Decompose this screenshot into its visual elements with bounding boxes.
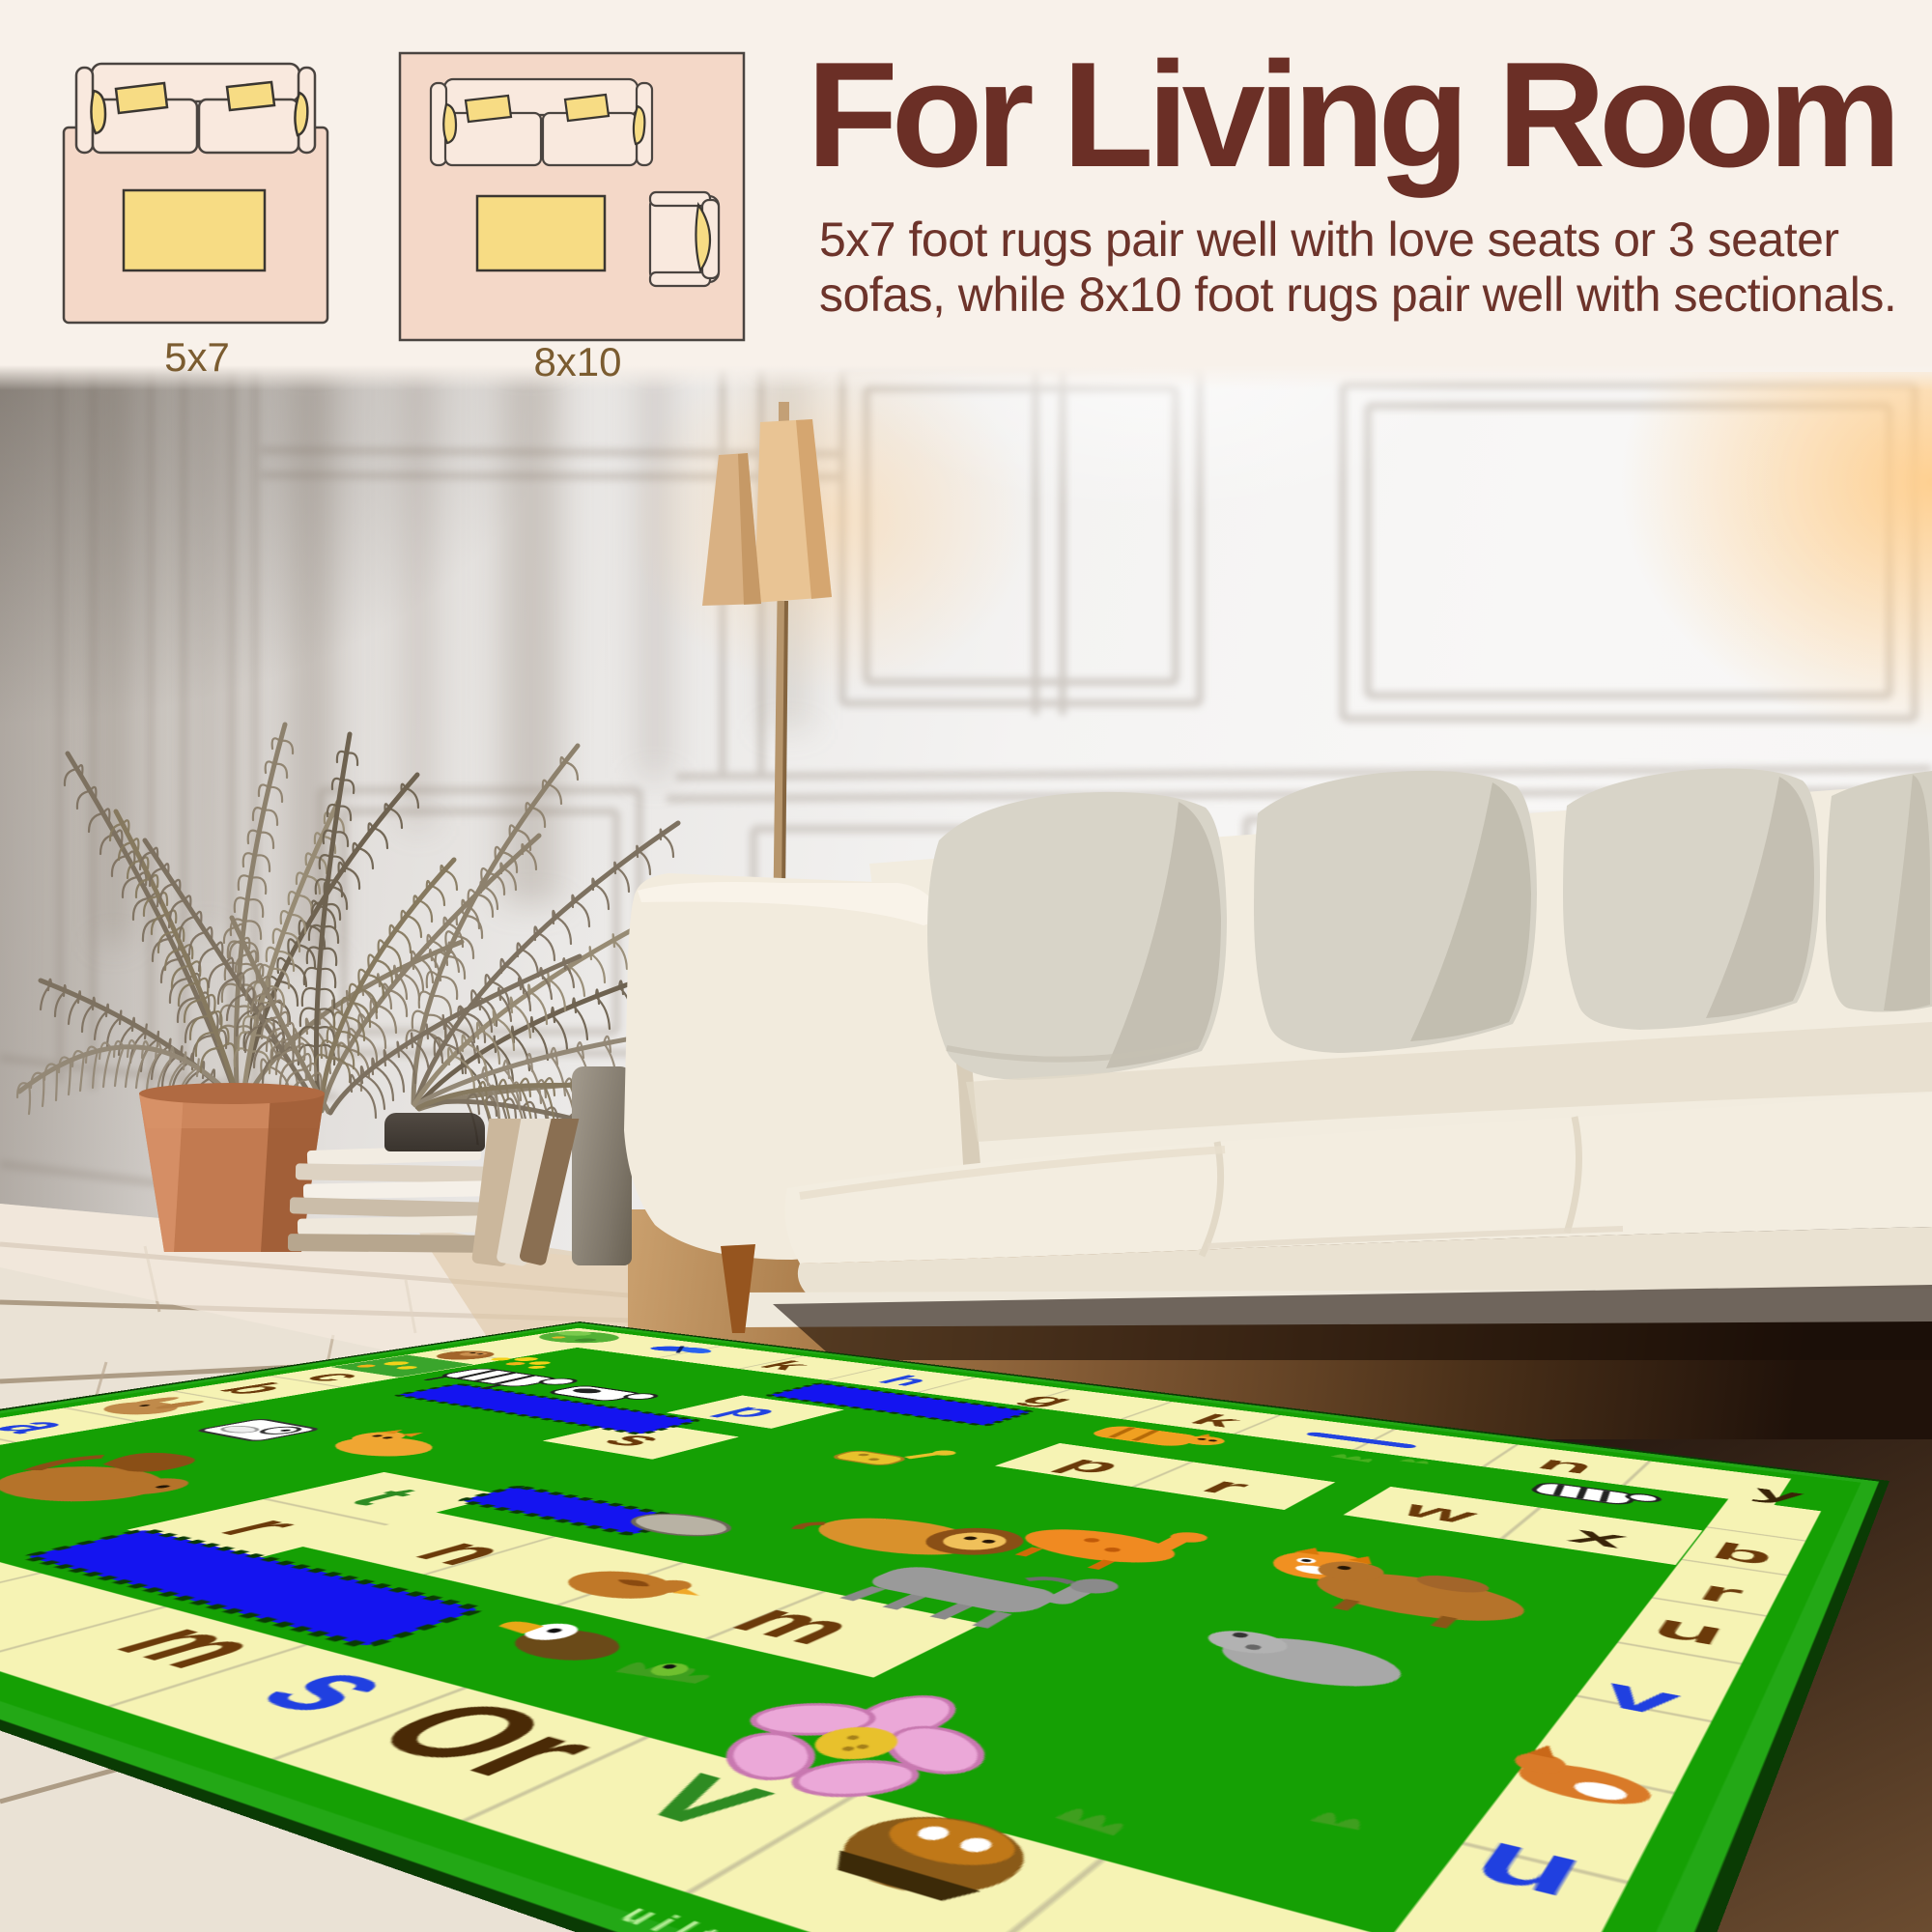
svg-text:5x7: 5x7 [164, 334, 230, 380]
svg-text:8x10: 8x10 [533, 339, 621, 384]
